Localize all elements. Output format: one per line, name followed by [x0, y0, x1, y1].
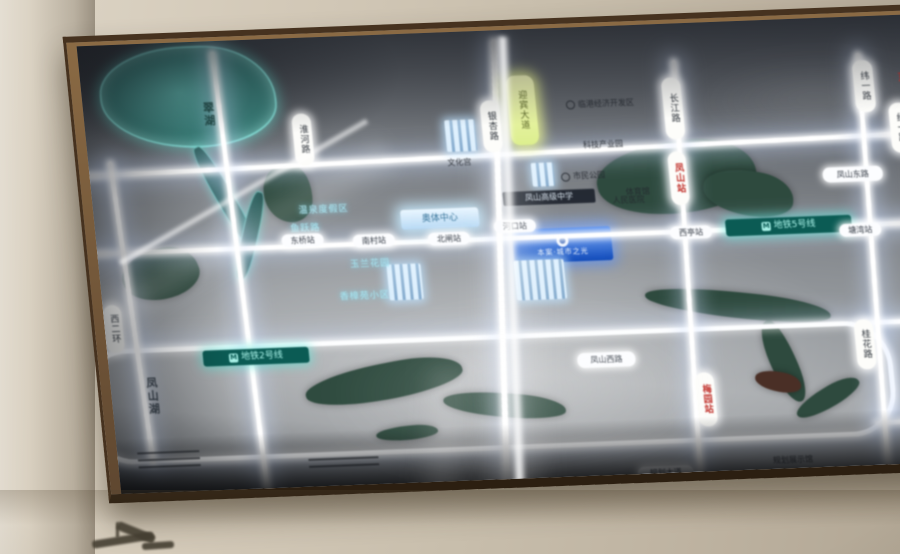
overexposure-wash	[241, 269, 802, 493]
glare-diagonal	[119, 118, 369, 265]
plant-ornament	[82, 522, 178, 554]
map-panel: 本案·城市之光 迎宾大道银杏路长江路凤山站纬一路经一路东淮河路梅园站桂花路西二环…	[77, 14, 900, 494]
glare-diagonal-soft	[96, 131, 402, 335]
glare-vertical-soft	[465, 158, 555, 493]
glass-reflections	[77, 14, 900, 494]
map-frame: 本案·城市之光 迎宾大道银杏路长江路凤山站纬一路经一路东淮河路梅园站桂花路西二环…	[63, 4, 900, 503]
glare-vertical	[496, 36, 528, 494]
glare-lower-soft	[411, 365, 479, 494]
haze-top-right	[639, 38, 900, 161]
photo-of-backlit-map: 本案·城市之光 迎宾大道银杏路长江路凤山站纬一路经一路东淮河路梅园站桂花路西二环…	[0, 0, 900, 554]
